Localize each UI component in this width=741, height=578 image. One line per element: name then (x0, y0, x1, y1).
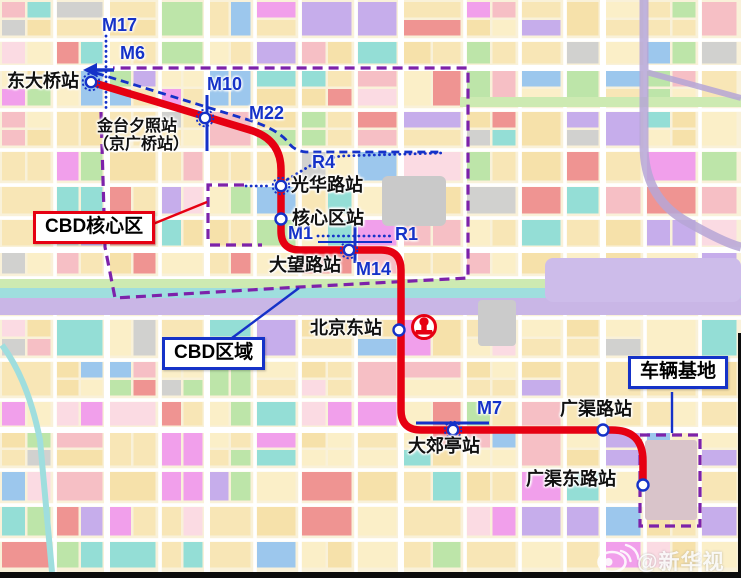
station-marker-jintaixizhao (197, 110, 214, 127)
watermark-handle: @新华视点 (637, 546, 741, 578)
line-label-m14: M14 (356, 260, 391, 279)
line-label-m17: M17 (102, 16, 137, 35)
station-marker-dawanglu (341, 242, 358, 259)
station-label-dajiaoting: 大郊亭站 (408, 437, 480, 456)
station-marker-guangqulu (598, 425, 609, 436)
station-marker-guangqudonglu (638, 480, 649, 491)
line-label-r4: R4 (312, 153, 335, 172)
station-label-jingguangqiao: （京广桥站） (93, 137, 189, 154)
station-label-dongdaqiao: 东大桥站 (7, 72, 79, 91)
map-canvas (0, 0, 741, 578)
station-label-guanghualu: 光华路站 (291, 176, 363, 195)
callout-cbd-core: CBD核心区 (33, 211, 155, 244)
station-label-beijingdong: 北京东站 (310, 319, 382, 338)
map-stage: M17 M6 M10 M22 R4 M1 R1 M14 M7 东大桥站 金台夕照… (0, 0, 741, 578)
station-label-guangqulu: 广渠路站 (560, 400, 632, 419)
railway-station-icon (413, 316, 436, 339)
line-label-m22: M22 (249, 104, 284, 123)
callout-depot: 车辆基地 (628, 356, 728, 389)
bottom-border (0, 572, 741, 578)
station-label-hexinqu: 核心区站 (292, 209, 364, 228)
station-marker-hexinqu (276, 214, 287, 225)
station-label-dawanglu: 大望路站 (269, 256, 341, 275)
line-label-m7: M7 (477, 399, 502, 418)
station-label-jintaixizhao: 金台夕照站 (97, 119, 177, 136)
station-marker-dongdaqiao (83, 74, 100, 91)
line-label-m10: M10 (207, 75, 242, 94)
station-label-guangqudonglu: 广渠东路站 (526, 470, 616, 489)
line-label-m6: M6 (120, 44, 145, 63)
line-label-r1: R1 (395, 225, 418, 244)
station-marker-guanghualu (273, 178, 290, 195)
station-marker-beijingdong (394, 325, 405, 336)
callout-cbd-area: CBD区域 (162, 337, 265, 370)
